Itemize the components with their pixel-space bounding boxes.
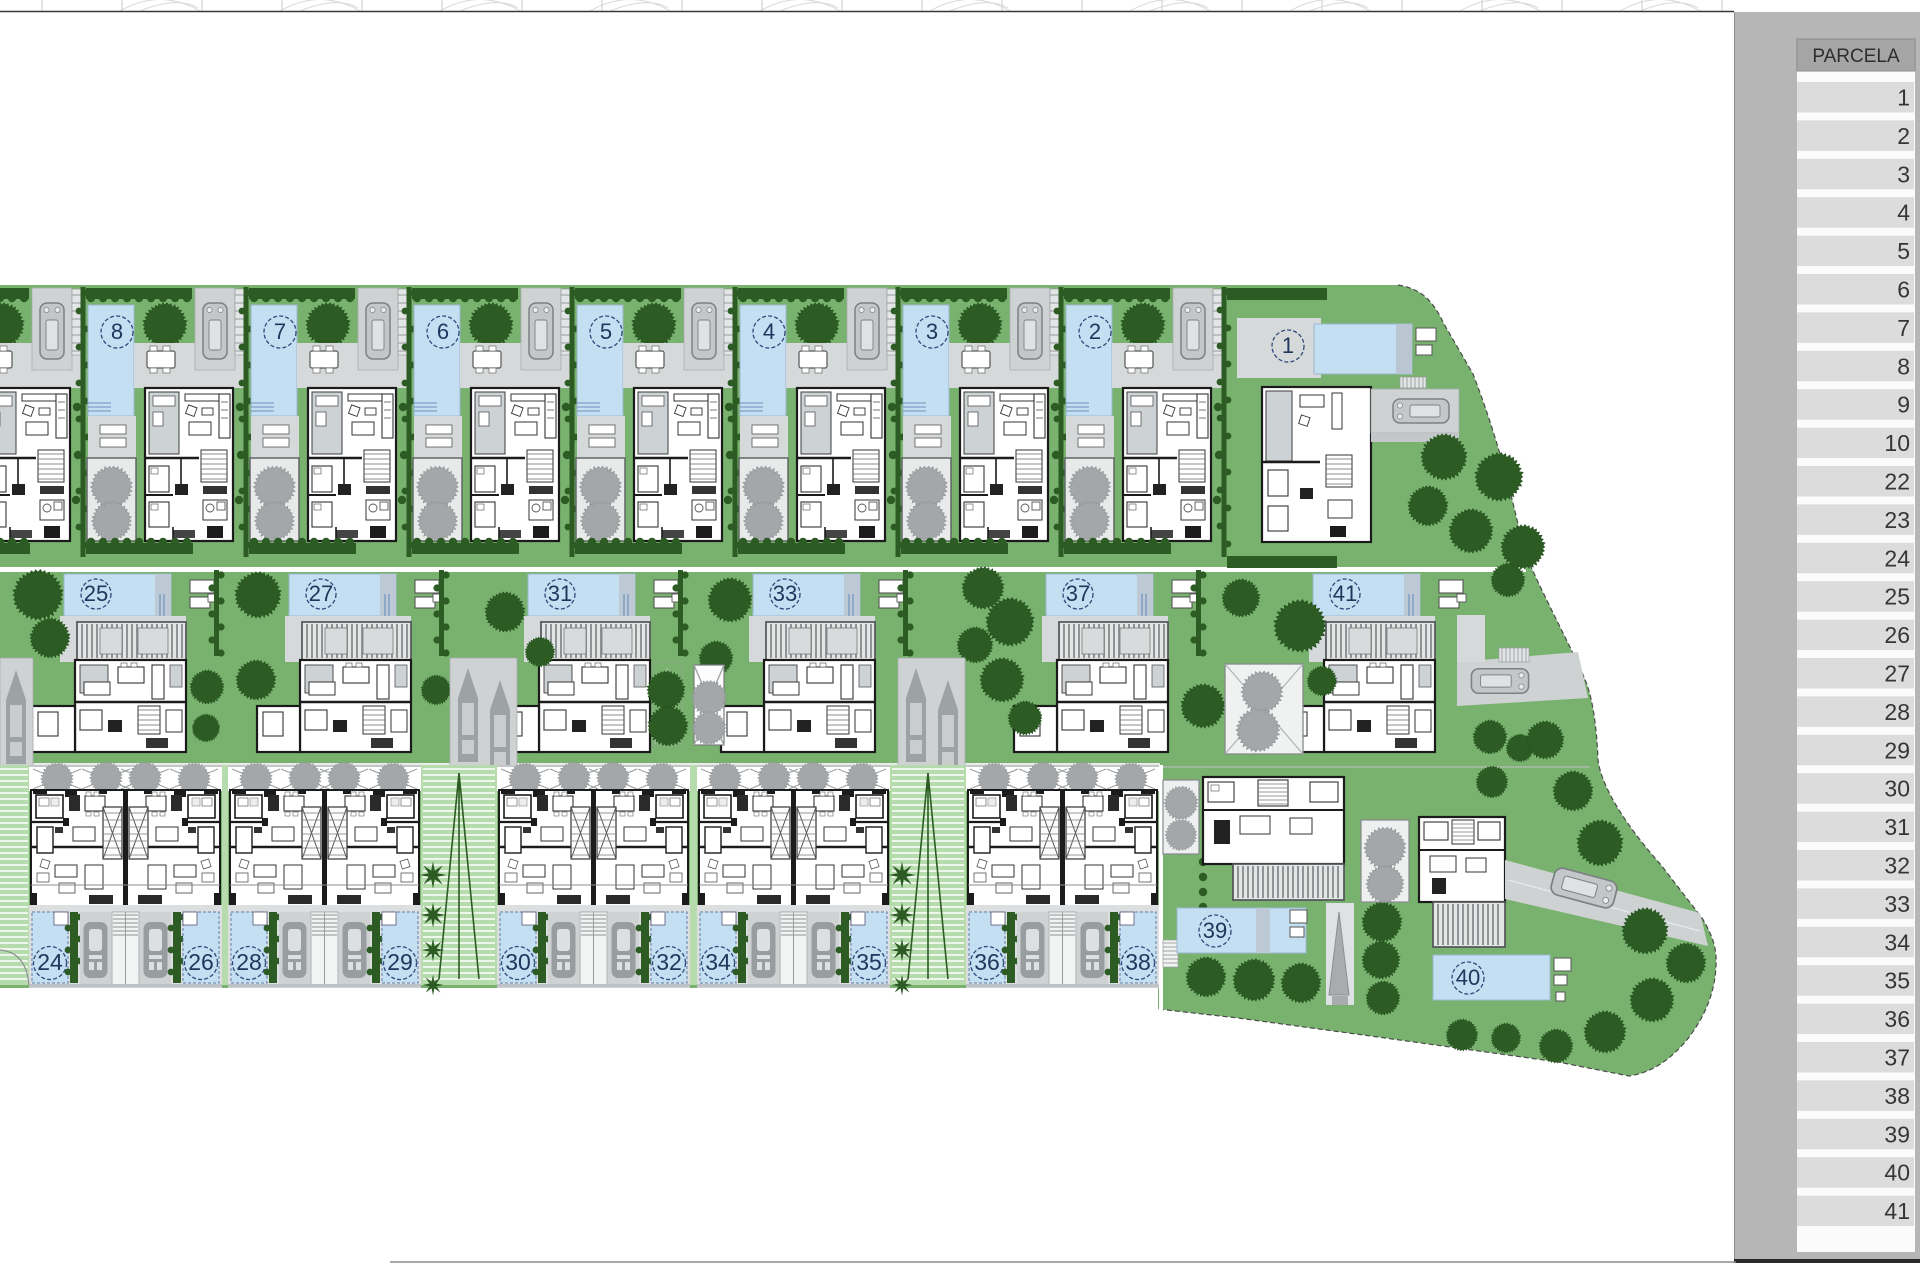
svg-text:27: 27 [309,581,333,606]
svg-text:3: 3 [1897,161,1910,187]
svg-text:33: 33 [1884,891,1910,917]
svg-text:38: 38 [1884,1083,1910,1109]
svg-text:28: 28 [236,949,262,975]
svg-text:25: 25 [1884,584,1910,610]
svg-text:7: 7 [274,319,286,344]
svg-text:2: 2 [1897,123,1910,149]
svg-text:5: 5 [1897,238,1910,264]
svg-text:40: 40 [1884,1160,1910,1186]
svg-text:41: 41 [1333,581,1357,606]
svg-text:35: 35 [1884,968,1910,994]
svg-text:4: 4 [763,319,775,344]
svg-text:PARCELA: PARCELA [1812,46,1900,67]
svg-text:8: 8 [111,319,123,344]
svg-text:29: 29 [1884,737,1910,763]
svg-text:30: 30 [505,949,531,975]
svg-text:27: 27 [1884,661,1910,687]
svg-text:6: 6 [1897,277,1910,303]
svg-text:24: 24 [37,949,63,975]
svg-text:34: 34 [705,949,731,975]
svg-text:38: 38 [1125,949,1151,975]
svg-text:37: 37 [1066,581,1090,606]
svg-text:8: 8 [1897,353,1910,379]
svg-text:29: 29 [387,949,413,975]
svg-text:33: 33 [773,581,797,606]
svg-text:31: 31 [548,581,572,606]
svg-text:10: 10 [1884,430,1910,456]
svg-text:2: 2 [1089,319,1101,344]
svg-text:26: 26 [1884,622,1910,648]
svg-text:26: 26 [188,949,214,975]
svg-text:1: 1 [1897,85,1910,111]
svg-text:39: 39 [1203,918,1227,943]
svg-text:31: 31 [1884,814,1910,840]
svg-text:37: 37 [1884,1045,1910,1071]
svg-text:32: 32 [656,949,682,975]
svg-text:22: 22 [1884,469,1910,495]
svg-text:36: 36 [1884,1006,1910,1032]
svg-text:25: 25 [84,581,108,606]
svg-text:41: 41 [1884,1198,1910,1224]
svg-text:36: 36 [974,949,1000,975]
svg-text:28: 28 [1884,699,1910,725]
svg-text:30: 30 [1884,776,1910,802]
svg-text:35: 35 [856,949,882,975]
svg-text:1: 1 [1282,333,1294,358]
svg-text:39: 39 [1884,1121,1910,1147]
svg-text:7: 7 [1897,315,1910,341]
svg-text:40: 40 [1456,965,1480,990]
svg-text:6: 6 [437,319,449,344]
svg-text:3: 3 [926,319,938,344]
svg-text:23: 23 [1884,507,1910,533]
svg-text:9: 9 [1897,392,1910,418]
svg-text:4: 4 [1897,200,1910,226]
svg-text:5: 5 [600,319,612,344]
svg-text:34: 34 [1884,929,1910,955]
svg-text:24: 24 [1884,545,1910,571]
svg-text:32: 32 [1884,853,1910,879]
